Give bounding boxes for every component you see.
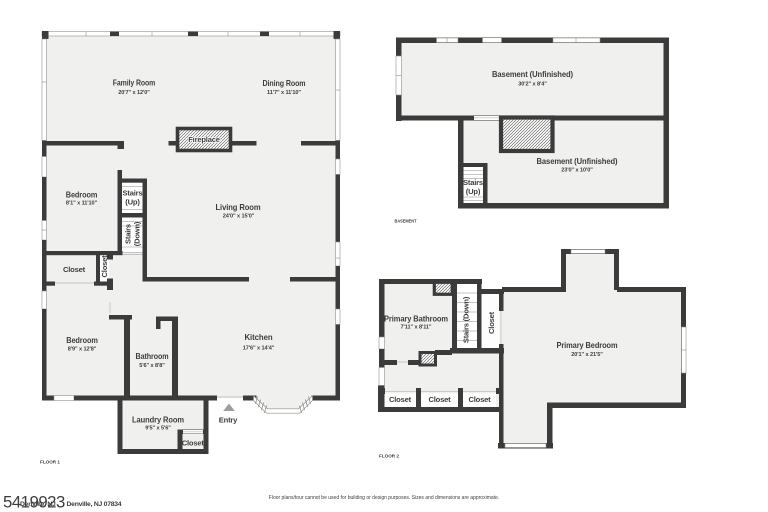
svg-text:Closet: Closet [468, 395, 491, 404]
svg-text:Denville, NJ 07834: Denville, NJ 07834 [67, 501, 122, 508]
svg-text:Bathroom: Bathroom [136, 351, 169, 361]
svg-text:(Up): (Up) [125, 198, 140, 207]
svg-text:FLOOR 1: FLOOR 1 [40, 460, 60, 465]
svg-text:9'5" x 5'6": 9'5" x 5'6" [145, 426, 171, 432]
svg-text:Closet: Closet [100, 255, 109, 278]
svg-text:Entry: Entry [219, 416, 238, 425]
svg-text:Closet: Closet [63, 265, 86, 274]
svg-text:Kitchen: Kitchen [245, 332, 273, 342]
svg-text:Primary Bedroom: Primary Bedroom [557, 340, 618, 350]
svg-text:Dining Room: Dining Room [263, 78, 306, 88]
svg-text:23'0" x 10'0": 23'0" x 10'0" [561, 168, 593, 174]
svg-text:Stairs: Stairs [463, 178, 483, 187]
svg-text:BASEMENT: BASEMENT [395, 219, 417, 224]
svg-text:Closet: Closet [182, 439, 205, 448]
svg-text:Fireplace: Fireplace [188, 135, 220, 144]
svg-text:(Up): (Up) [466, 187, 481, 196]
svg-text:8'1" x 11'10": 8'1" x 11'10" [66, 201, 98, 207]
svg-text:Stairs: Stairs [123, 188, 143, 197]
svg-text:7'11" x 8'11": 7'11" x 8'11" [401, 325, 432, 331]
svg-text:Laundry Room: Laundry Room [132, 414, 184, 424]
svg-text:8'9" x 12'8": 8'9" x 12'8" [68, 347, 97, 353]
svg-text:Family Room: Family Room [113, 78, 156, 88]
svg-text:Closet: Closet [389, 395, 412, 404]
svg-text:FLOOR 2: FLOOR 2 [379, 454, 399, 459]
svg-text:Basement (Unfinished): Basement (Unfinished) [537, 156, 618, 166]
svg-text:20'1" x 21'5": 20'1" x 21'5" [571, 352, 603, 358]
svg-text:Floor plans/tour cannot be use: Floor plans/tour cannot be used for buil… [269, 495, 499, 501]
svg-text:17'6" x 14'4": 17'6" x 14'4" [243, 346, 275, 352]
svg-text:Living Room: Living Room [216, 202, 261, 212]
svg-text:Stairs: Stairs [124, 224, 133, 244]
svg-text:(Down): (Down) [133, 221, 142, 246]
svg-text:30'2" x 8'4": 30'2" x 8'4" [518, 82, 547, 88]
svg-text:20'7" x 12'0": 20'7" x 12'0" [118, 90, 150, 96]
svg-text:Closet: Closet [487, 311, 496, 334]
svg-text:5'6" x 8'8": 5'6" x 8'8" [139, 363, 165, 369]
svg-text:Primary Bathroom: Primary Bathroom [384, 314, 448, 324]
svg-text:11'7" x 11'10": 11'7" x 11'10" [267, 90, 301, 96]
svg-text:5419923: 5419923 [3, 493, 65, 512]
svg-text:Stairs (Down): Stairs (Down) [462, 296, 471, 343]
svg-text:Closet: Closet [428, 395, 451, 404]
svg-text:Bedroom: Bedroom [66, 335, 98, 345]
svg-text:24'0" x 15'0": 24'0" x 15'0" [223, 214, 255, 220]
svg-text:Bedroom: Bedroom [66, 190, 98, 200]
svg-text:Basement (Unfinished): Basement (Unfinished) [492, 69, 573, 79]
